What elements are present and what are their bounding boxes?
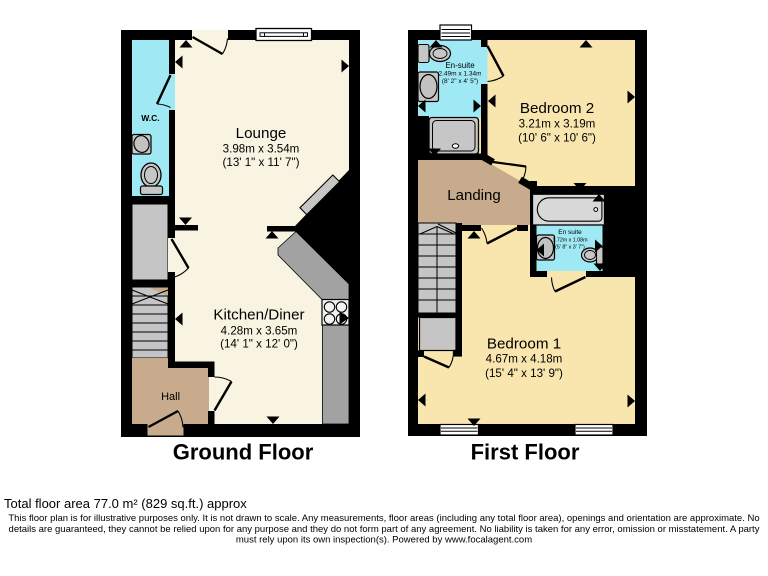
- svg-text:First Floor: First Floor: [471, 440, 580, 465]
- svg-text:Total floor area 77.0 m² (829: Total floor area 77.0 m² (829 sq.ft.) ap…: [4, 496, 247, 511]
- svg-text:Landing: Landing: [447, 187, 500, 204]
- svg-text:3.98m x 3.54m: 3.98m x 3.54m: [223, 143, 300, 156]
- svg-text:(14' 1" x 12' 0"): (14' 1" x 12' 0"): [220, 338, 298, 351]
- svg-text:This floor plan is for illustr: This floor plan is for illustrative purp…: [8, 513, 759, 524]
- svg-text:Hall: Hall: [161, 391, 180, 403]
- svg-text:(8' 2" x 4' 5"): (8' 2" x 4' 5"): [442, 78, 478, 85]
- svg-text:2.49m x 1.34m: 2.49m x 1.34m: [439, 71, 482, 78]
- svg-text:Ground Floor: Ground Floor: [173, 440, 314, 465]
- svg-text:Bedroom 1: Bedroom 1: [487, 336, 561, 353]
- svg-text:Lounge: Lounge: [236, 125, 287, 142]
- svg-text:(15' 4" x 13' 9"): (15' 4" x 13' 9"): [485, 367, 563, 380]
- svg-text:W.C.: W.C.: [141, 113, 159, 123]
- svg-text:3.21m x 3.19m: 3.21m x 3.19m: [519, 118, 596, 131]
- svg-text:(10' 6" x 10' 6"): (10' 6" x 10' 6"): [518, 132, 596, 145]
- svg-text:1.72m x 1.08m: 1.72m x 1.08m: [552, 238, 588, 244]
- svg-text:En-suite: En-suite: [445, 61, 475, 70]
- svg-text:Bedroom 2: Bedroom 2: [520, 100, 594, 117]
- svg-text:Kitchen/Diner: Kitchen/Diner: [213, 307, 304, 324]
- svg-text:4.28m x 3.65m: 4.28m x 3.65m: [221, 325, 298, 338]
- svg-text:details are guaranteed, they c: details are guaranteed, they cannot be r…: [9, 524, 760, 535]
- svg-text:En suite: En suite: [558, 229, 582, 236]
- svg-text:must rely upon its own inspect: must rely upon its own inspection(s). Po…: [236, 535, 532, 546]
- svg-text:(5' 8" x 3' 7"): (5' 8" x 3' 7"): [555, 245, 585, 251]
- svg-text:(13' 1" x 11' 7"): (13' 1" x 11' 7"): [223, 156, 300, 169]
- svg-text:4.67m x 4.18m: 4.67m x 4.18m: [486, 353, 563, 366]
